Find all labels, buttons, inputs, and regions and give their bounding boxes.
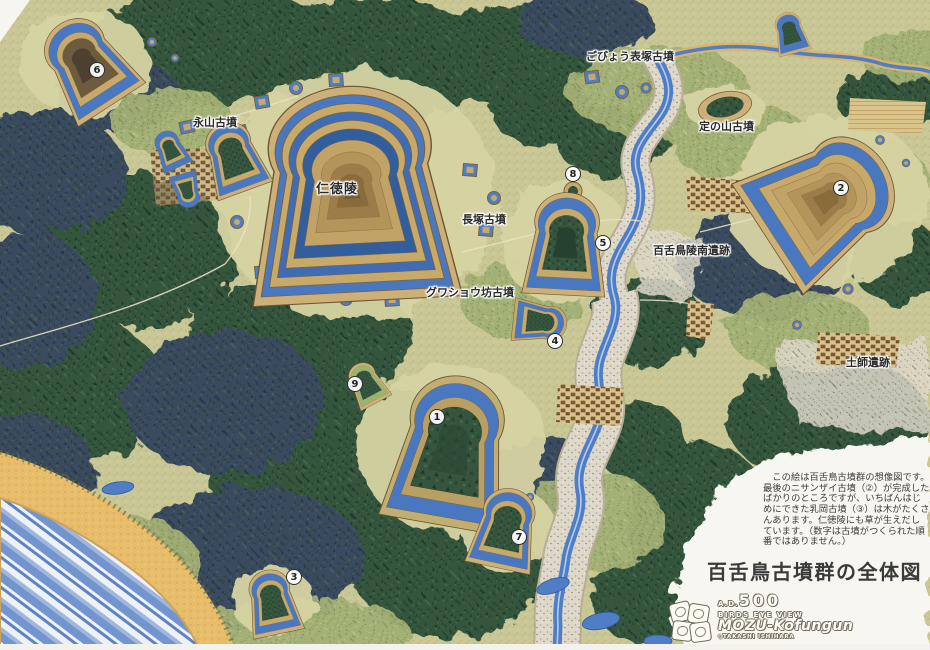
label-gobyo-omotezuka-kofun: ごびょう表塚古墳 [586,48,674,64]
logo-stamp-icon [668,600,714,644]
label-haze-iseki: 土師遺跡 [846,354,890,370]
marker-1: 1 [429,409,445,425]
logo-era: A.D.500 [718,594,853,611]
marker-4: 4 [547,333,563,349]
map-title: 百舌鳥古墳群の全体図 [707,556,922,585]
label-nagatsuka-kofun: 長塚古墳 [462,211,506,227]
paper-margin [0,644,930,650]
fields [848,98,926,134]
logo-title: MOZU-Kofungun [718,619,853,634]
map-note: この絵は百舌鳥古墳群の想像図です。 最後のニサンザイ古墳（②）が完成した ばかり… [763,473,927,548]
map-illustration [0,0,930,650]
logo-credit: ◇TAKASHI ISHIHARA [718,634,853,641]
mozu-kofun-map: 永山古墳 仁徳陵 ごびょう表塚古墳 定の山古墳 長塚古墳 百舌鳥陵南遺跡 グワシ… [0,0,930,650]
label-jonoyama-kofun: 定の山古墳 [699,118,754,134]
marker-9: 9 [347,376,363,392]
marker-7: 7 [511,529,527,545]
marker-3: 3 [286,569,302,585]
logo: A.D.500 BIRDS EYE VIEW MOZU-Kofungun ◇TA… [668,594,853,644]
marker-8: 8 [565,166,581,182]
note-line: 番ではありません。） [763,537,927,548]
label-mozu-ryonan-iseki: 百舌鳥陵南遺跡 [653,242,730,258]
marker-2: 2 [833,180,849,196]
logo-text: A.D.500 BIRDS EYE VIEW MOZU-Kofungun ◇TA… [718,594,853,641]
marker-6: 6 [89,62,105,78]
label-nintoku-ryo: 仁徳陵 [316,178,358,197]
label-gwashobo-kofun: グワショウ坊古墳 [426,284,514,300]
note-line: んあります。仁徳陵にも草が生えだし [763,516,927,527]
label-nagayama-kofun: 永山古墳 [193,114,237,130]
marker-5: 5 [595,235,611,251]
